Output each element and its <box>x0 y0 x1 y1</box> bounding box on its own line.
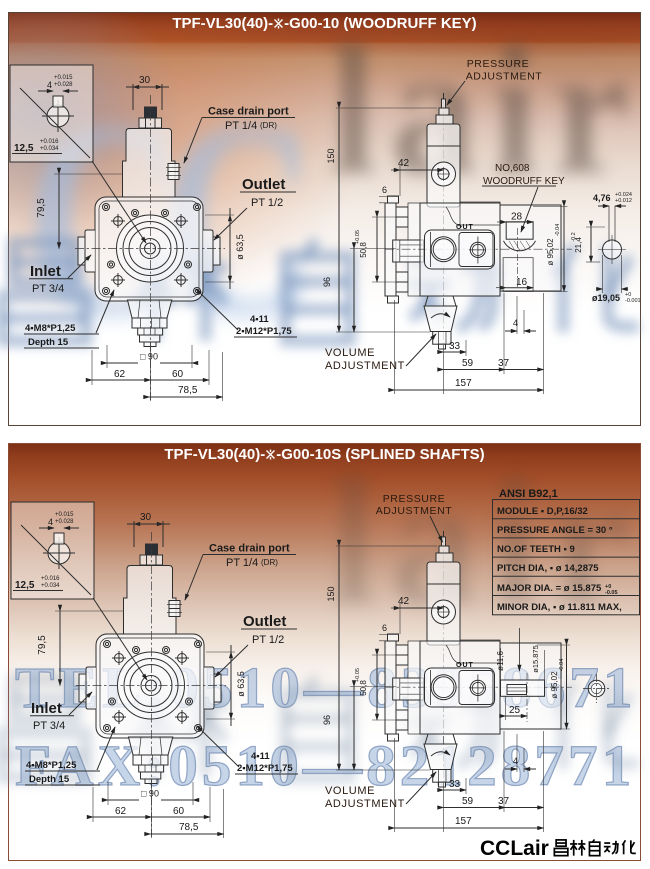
svg-text:ø 95,02: ø 95,02 <box>550 671 559 699</box>
svg-text:PT 1/2: PT 1/2 <box>251 197 283 209</box>
svg-text:78,5: 78,5 <box>178 385 198 396</box>
svg-text:ø 95,02: ø 95,02 <box>546 238 555 266</box>
svg-text:PT 1/4: PT 1/4 <box>225 120 257 132</box>
svg-text:+0.028: +0.028 <box>54 82 73 88</box>
svg-text:62: 62 <box>114 369 126 380</box>
svg-text:157: 157 <box>455 378 472 389</box>
svg-text:-0.001: -0.001 <box>625 298 641 304</box>
svg-text:MAJOR DIA. = ø 15.875: MAJOR DIA. = ø 15.875 <box>497 583 602 594</box>
svg-text:42: 42 <box>398 158 410 169</box>
svg-text:33: 33 <box>449 341 461 352</box>
svg-text:2▪M12*P1,75: 2▪M12*P1,75 <box>236 326 292 337</box>
svg-text:-0.05: -0.05 <box>605 590 618 596</box>
svg-text:Inlet: Inlet <box>30 263 61 280</box>
svg-text:□ 90: □ 90 <box>140 352 158 362</box>
svg-text:37: 37 <box>498 358 510 369</box>
svg-text:PT 3/4: PT 3/4 <box>32 283 64 295</box>
svg-text:79,5: 79,5 <box>36 198 47 218</box>
svg-text:-0.04: -0.04 <box>555 224 561 237</box>
svg-text:+0.015: +0.015 <box>54 75 73 81</box>
svg-text:ø11,6: ø11,6 <box>496 651 505 671</box>
svg-text:Depth 15: Depth 15 <box>28 337 69 348</box>
svg-text:NO,608: NO,608 <box>495 163 530 174</box>
svg-text:+0.05: +0.05 <box>355 230 361 244</box>
svg-text:4▪M8*P1,25: 4▪M8*P1,25 <box>25 323 76 334</box>
svg-text:-0.2: -0.2 <box>571 232 577 241</box>
svg-text:4: 4 <box>513 318 518 328</box>
svg-text:30: 30 <box>139 75 151 86</box>
svg-text:VOLUME: VOLUME <box>325 347 375 359</box>
svg-text:PRESSURE: PRESSURE <box>467 58 530 70</box>
svg-text:PRESSURE: PRESSURE <box>383 493 446 505</box>
svg-text:4: 4 <box>47 80 52 90</box>
svg-text:12,5: 12,5 <box>14 143 34 154</box>
svg-text:ADJUSTMENT: ADJUSTMENT <box>325 360 405 372</box>
svg-text:MINOR DIA, ▪ ø 11.811 MAX,: MINOR DIA, ▪ ø 11.811 MAX, <box>497 602 622 613</box>
svg-text:60: 60 <box>172 369 184 380</box>
svg-text:ADJUSTMENT: ADJUSTMENT <box>466 71 543 83</box>
svg-text:ø 63,5: ø 63,5 <box>235 234 245 260</box>
svg-text:ADJUSTMENT: ADJUSTMENT <box>376 505 453 517</box>
svg-text:ANSI B92,1: ANSI B92,1 <box>499 488 558 500</box>
svg-text:CCLair: CCLair <box>480 837 549 860</box>
svg-text:+0.034: +0.034 <box>40 146 59 152</box>
svg-text:+0.012: +0.012 <box>615 198 632 204</box>
svg-text:6: 6 <box>382 185 387 195</box>
svg-text:-0.04: -0.04 <box>559 659 565 672</box>
svg-text:WOODRUFF KEY: WOODRUFF KEY <box>483 176 565 187</box>
svg-text:96: 96 <box>322 277 332 287</box>
svg-text:OUT: OUT <box>456 224 474 231</box>
svg-text:NO.OF TEETH ▪ 9: NO.OF TEETH ▪ 9 <box>497 544 575 555</box>
svg-text:+0.016: +0.016 <box>40 139 59 145</box>
svg-text:Case drain port: Case drain port <box>208 106 289 118</box>
svg-text:4▪11: 4▪11 <box>250 314 269 325</box>
svg-text:25: 25 <box>509 705 521 716</box>
svg-text:PRESSURE ANGLE = 30 °: PRESSURE ANGLE = 30 ° <box>497 525 613 536</box>
svg-text:ø19,05: ø19,05 <box>592 293 620 303</box>
svg-text:PITCH DIA, ▪ ø 14,2875: PITCH DIA, ▪ ø 14,2875 <box>497 563 599 574</box>
svg-text:ø15.875: ø15.875 <box>531 645 540 673</box>
svg-text:16: 16 <box>516 277 528 288</box>
svg-text:MODULE ▪ D,P,16/32: MODULE ▪ D,P,16/32 <box>497 506 588 517</box>
svg-text:59: 59 <box>462 358 474 369</box>
svg-text:Outlet: Outlet <box>242 176 285 193</box>
svg-text:(DR): (DR) <box>260 121 277 130</box>
svg-text:4,76: 4,76 <box>593 193 611 203</box>
svg-text:28: 28 <box>511 212 523 223</box>
svg-text:150: 150 <box>326 148 336 163</box>
